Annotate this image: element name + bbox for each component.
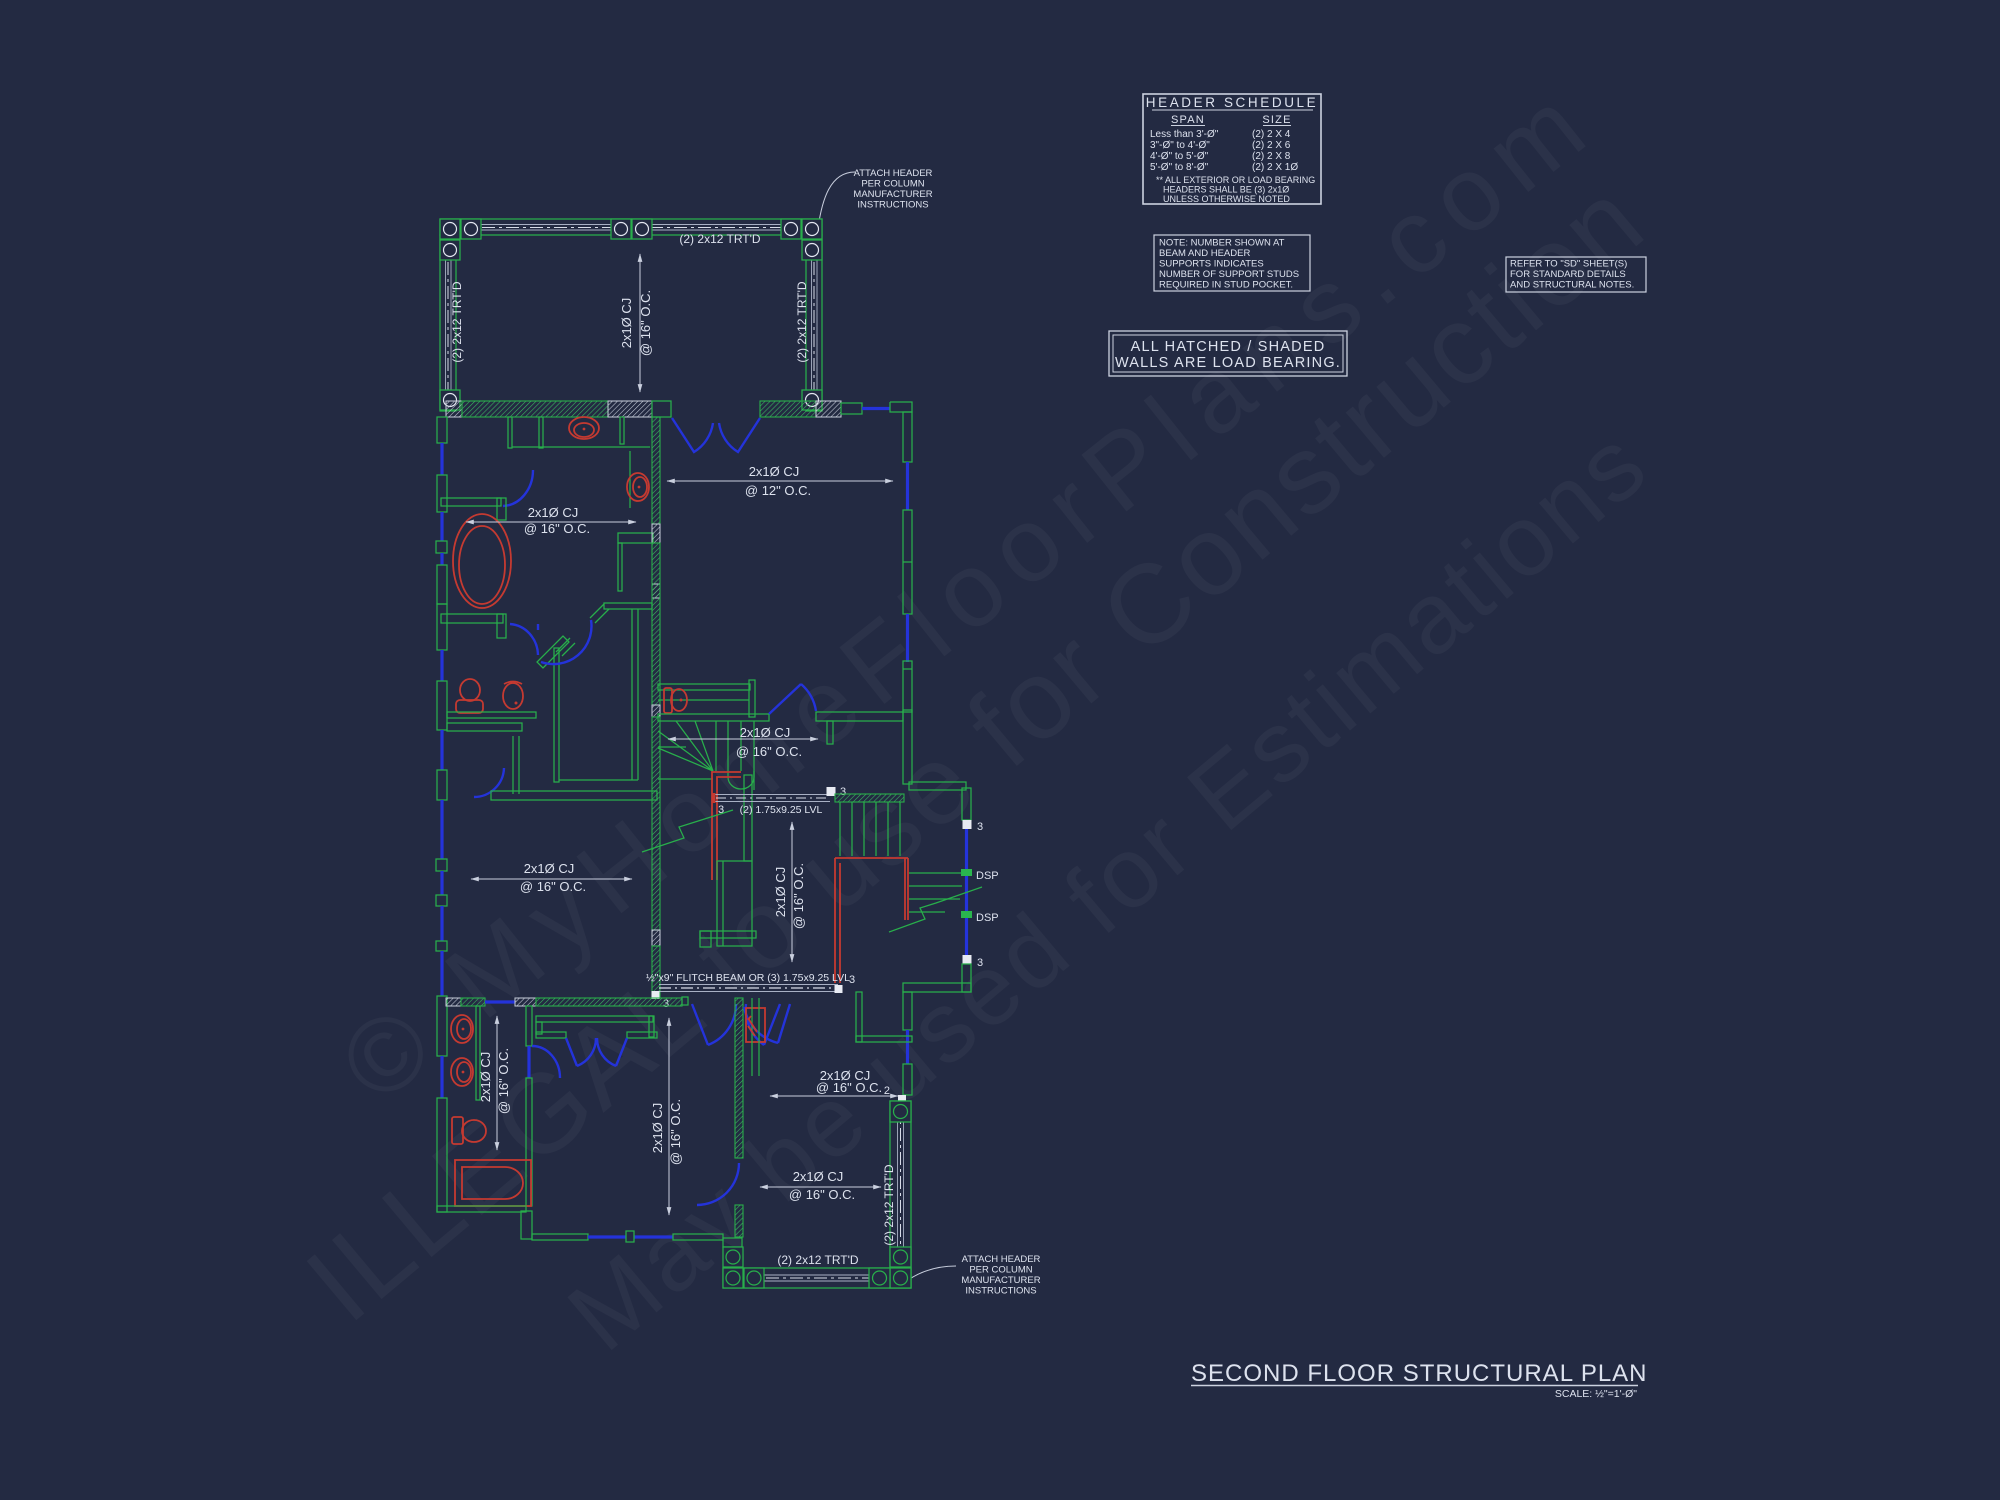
svg-text:ATTACH HEADER: ATTACH HEADER — [962, 1254, 1041, 1265]
svg-text:ALL HATCHED / SHADED: ALL HATCHED / SHADED — [1131, 339, 1326, 355]
svg-text:½"x9" FLITCH BEAM OR (3) 1.75x: ½"x9" FLITCH BEAM OR (3) 1.75x9.25 LVL — [646, 972, 850, 984]
svg-text:REQUIRED IN STUD POCKET.: REQUIRED IN STUD POCKET. — [1159, 280, 1293, 291]
svg-text:UNLESS OTHERWISE NOTED: UNLESS OTHERWISE NOTED — [1163, 194, 1290, 204]
svg-text:REFER TO "SD" SHEET(S): REFER TO "SD" SHEET(S) — [1510, 259, 1627, 270]
svg-text:@ 16" O.C.: @ 16" O.C. — [638, 290, 653, 356]
svg-text:SCALE: ½"=1'-Ø": SCALE: ½"=1'-Ø" — [1555, 1388, 1637, 1400]
svg-text:@ 16" O.C.: @ 16" O.C. — [816, 1080, 882, 1095]
svg-text:(2) 2 X 1Ø: (2) 2 X 1Ø — [1252, 162, 1298, 173]
svg-text:(2) 2x12 TRT'D: (2) 2x12 TRT'D — [679, 232, 761, 246]
svg-text:2x1Ø CJ: 2x1Ø CJ — [528, 505, 579, 520]
svg-text:NOTE: NUMBER SHOWN AT: NOTE: NUMBER SHOWN AT — [1159, 238, 1285, 249]
svg-text:3: 3 — [977, 821, 983, 833]
svg-text:BEAM AND HEADER: BEAM AND HEADER — [1159, 248, 1250, 259]
svg-text:SPAN: SPAN — [1171, 114, 1205, 126]
svg-text:@ 16" O.C.: @ 16" O.C. — [496, 1048, 511, 1114]
svg-text:(2) 2x12 TRT'D: (2) 2x12 TRT'D — [450, 281, 464, 363]
svg-text:(2) 2x12 TRT'D: (2) 2x12 TRT'D — [777, 1253, 859, 1267]
svg-text:3: 3 — [977, 957, 983, 969]
svg-text:2x1Ø CJ: 2x1Ø CJ — [773, 867, 788, 918]
svg-text:@ 16" O.C.: @ 16" O.C. — [524, 521, 590, 536]
svg-text:@ 16" O.C.: @ 16" O.C. — [789, 1187, 855, 1202]
svg-text:MANUFACTURER: MANUFACTURER — [853, 189, 932, 200]
svg-text:2x1Ø CJ: 2x1Ø CJ — [478, 1052, 493, 1103]
svg-text:INSTRUCTIONS: INSTRUCTIONS — [857, 200, 928, 211]
svg-text:4'-Ø" to 5'-Ø": 4'-Ø" to 5'-Ø" — [1150, 151, 1209, 162]
svg-text:HEADERS SHALL BE (3) 2x1Ø: HEADERS SHALL BE (3) 2x1Ø — [1163, 185, 1289, 195]
svg-text:2x1Ø CJ: 2x1Ø CJ — [524, 861, 575, 876]
svg-text:(2) 1.75x9.25 LVL: (2) 1.75x9.25 LVL — [740, 804, 823, 816]
svg-text:INSTRUCTIONS: INSTRUCTIONS — [965, 1286, 1036, 1297]
svg-text:2x1Ø CJ: 2x1Ø CJ — [749, 464, 800, 479]
svg-text:NUMBER OF SUPPORT STUDS: NUMBER OF SUPPORT STUDS — [1159, 269, 1299, 280]
svg-text:FOR STANDARD DETAILS: FOR STANDARD DETAILS — [1510, 269, 1626, 280]
svg-text:Less than 3'-Ø": Less than 3'-Ø" — [1150, 129, 1219, 140]
svg-text:@ 12" O.C.: @ 12" O.C. — [745, 483, 811, 498]
svg-text:(2) 2 X 4: (2) 2 X 4 — [1252, 129, 1291, 140]
svg-text:2x1Ø CJ: 2x1Ø CJ — [793, 1169, 844, 1184]
svg-text:** ALL EXTERIOR OR LOAD BEARIN: ** ALL EXTERIOR OR LOAD BEARING — [1156, 175, 1315, 185]
svg-text:@ 16" O.C.: @ 16" O.C. — [668, 1099, 683, 1165]
svg-text:2: 2 — [884, 1085, 890, 1097]
svg-text:2x1Ø CJ: 2x1Ø CJ — [650, 1103, 665, 1154]
svg-text:PER COLUMN: PER COLUMN — [861, 179, 924, 190]
svg-text:HEADER SCHEDULE: HEADER SCHEDULE — [1146, 95, 1319, 110]
svg-text:PER COLUMN: PER COLUMN — [969, 1265, 1032, 1276]
svg-text:DSP: DSP — [976, 912, 999, 924]
svg-text:(2) 2 X 6: (2) 2 X 6 — [1252, 140, 1291, 151]
svg-text:MANUFACTURER: MANUFACTURER — [961, 1275, 1040, 1286]
svg-text:(2) 2x12 TRT'D: (2) 2x12 TRT'D — [882, 1164, 896, 1246]
svg-text:SIZE: SIZE — [1262, 114, 1291, 126]
svg-text:SUPPORTS INDICATES: SUPPORTS INDICATES — [1159, 259, 1264, 270]
svg-text:ATTACH HEADER: ATTACH HEADER — [854, 168, 933, 179]
svg-text:@ 16" O.C.: @ 16" O.C. — [791, 863, 806, 929]
svg-text:(2) 2x12 TRT'D: (2) 2x12 TRT'D — [795, 281, 809, 363]
svg-text:2x1Ø CJ: 2x1Ø CJ — [740, 725, 791, 740]
svg-text:@ 16" O.C.: @ 16" O.C. — [736, 744, 802, 759]
svg-text:WALLS ARE LOAD BEARING.: WALLS ARE LOAD BEARING. — [1115, 355, 1341, 371]
svg-text:2x1Ø CJ: 2x1Ø CJ — [619, 298, 634, 349]
svg-text:AND STRUCTURAL NOTES.: AND STRUCTURAL NOTES. — [1510, 280, 1634, 291]
svg-text:SECOND FLOOR STRUCTURAL PLAN: SECOND FLOOR STRUCTURAL PLAN — [1191, 1360, 1648, 1387]
svg-text:(2) 2 X 8: (2) 2 X 8 — [1252, 151, 1291, 162]
svg-text:3"-Ø" to 4'-Ø": 3"-Ø" to 4'-Ø" — [1150, 140, 1210, 151]
svg-text:DSP: DSP — [976, 870, 999, 882]
svg-text:@ 16" O.C.: @ 16" O.C. — [520, 879, 586, 894]
svg-text:5'-Ø" to 8'-Ø": 5'-Ø" to 8'-Ø" — [1150, 162, 1209, 173]
